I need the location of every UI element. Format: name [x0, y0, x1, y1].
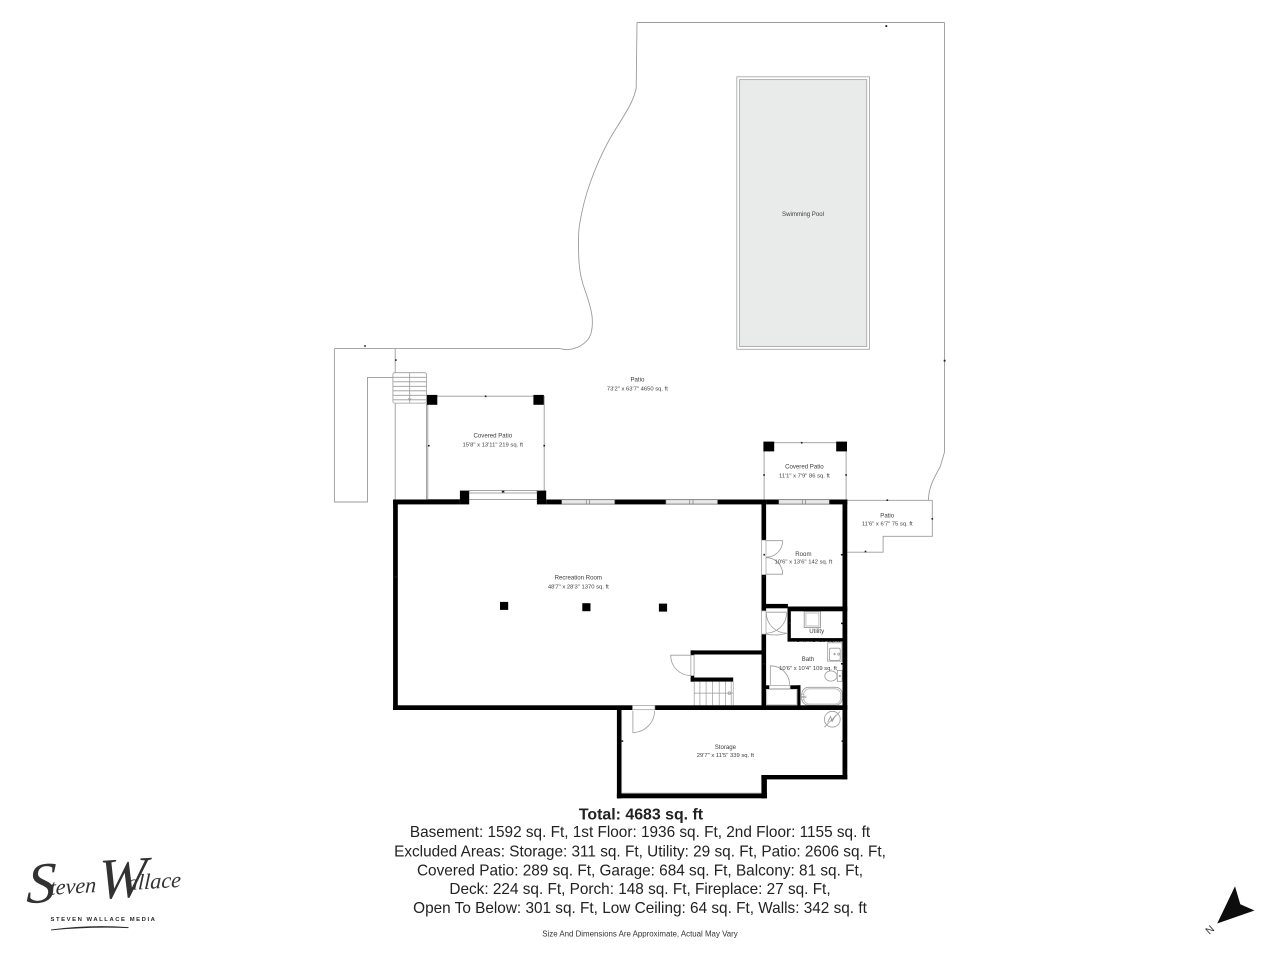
svg-text:STEVEN WALLACE MEDIA: STEVEN WALLACE MEDIA	[51, 917, 157, 923]
svg-text:73'2" x 63'7" 4650 sq. ft: 73'2" x 63'7" 4650 sq. ft	[607, 387, 668, 393]
svg-text:48'7" x 28'3" 1370 sq. ft: 48'7" x 28'3" 1370 sq. ft	[548, 584, 609, 590]
svg-text:Room: Room	[795, 551, 811, 558]
svg-text:10'6" x 10'4" 109 sq. ft: 10'6" x 10'4" 109 sq. ft	[779, 666, 837, 672]
svg-text:Utility: Utility	[809, 628, 825, 635]
svg-text:teven: teven	[49, 872, 97, 900]
svg-text:Storage: Storage	[715, 744, 737, 751]
svg-text:allace: allace	[127, 867, 182, 895]
svg-text:Swimming Pool: Swimming Pool	[782, 211, 824, 218]
svg-text:Patio: Patio	[630, 377, 645, 384]
svg-text:Excluded Areas: Storage: 311 s: Excluded Areas: Storage: 311 sq. Ft, Uti…	[394, 844, 886, 861]
svg-text:Bath: Bath	[802, 656, 815, 663]
svg-text:Size And Dimensions Are Approx: Size And Dimensions Are Approximate, Act…	[542, 930, 738, 939]
svg-text:11'6" x 6'7" 75 sq. ft: 11'6" x 6'7" 75 sq. ft	[862, 522, 913, 528]
svg-text:Deck: 224 sq. Ft, Porch: 148 s: Deck: 224 sq. Ft, Porch: 148 sq. Ft, Fir…	[449, 881, 830, 898]
svg-text:Total: 4683 sq. ft: Total: 4683 sq. ft	[579, 806, 704, 823]
svg-text:Open To Below: 301 sq. Ft, Low: Open To Below: 301 sq. Ft, Low Ceiling: …	[413, 900, 867, 917]
svg-text:Covered Patio: Covered Patio	[473, 432, 512, 439]
svg-text:N: N	[1203, 923, 1217, 937]
svg-text:Basement: 1592 sq. Ft, 1st Flo: Basement: 1592 sq. Ft, 1st Floor: 1936 s…	[410, 824, 871, 841]
svg-text:29'7" x 11'5" 339 sq. ft: 29'7" x 11'5" 339 sq. ft	[697, 753, 755, 759]
svg-text:Recreation Room: Recreation Room	[555, 575, 602, 582]
svg-text:10'6" x 13'6" 142 sq. ft: 10'6" x 13'6" 142 sq. ft	[775, 560, 833, 566]
svg-text:Patio: Patio	[880, 512, 895, 519]
svg-text:11'1" x 7'9" 86 sq. ft: 11'1" x 7'9" 86 sq. ft	[779, 473, 830, 479]
svg-text:Covered Patio: 289 sq. Ft, Gar: Covered Patio: 289 sq. Ft, Garage: 684 s…	[417, 863, 863, 880]
svg-text:15'8" x 13'11" 219 sq. ft: 15'8" x 13'11" 219 sq. ft	[463, 442, 524, 448]
svg-text:Covered Patio: Covered Patio	[785, 464, 824, 471]
